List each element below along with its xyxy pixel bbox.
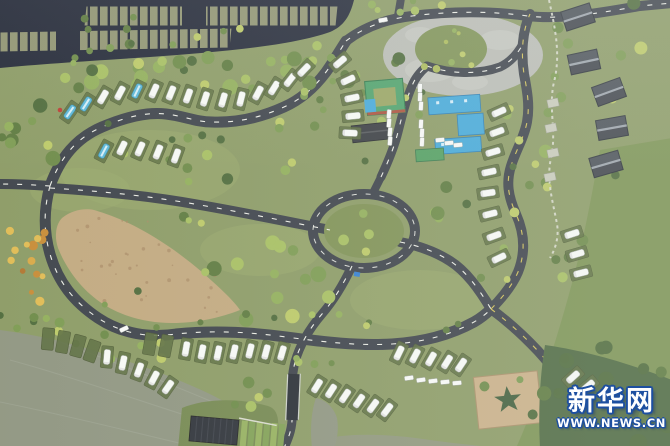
car [418,83,423,92]
aerial-photo: 新华网 WWW.NEWS.CN [0,0,670,446]
bridge [286,374,301,421]
green-roof-building [363,78,406,115]
gravel-square [473,371,542,429]
watermark-site-name: 新华网 [557,388,666,415]
lakeside-lodge [178,400,285,446]
car [387,136,392,145]
car [419,119,424,128]
car [435,137,444,142]
rv-camper [342,109,365,123]
car [386,109,391,118]
rv-camper [339,126,362,139]
car [418,92,423,101]
car [386,118,391,127]
car [419,101,424,110]
car [440,379,449,384]
car [428,378,437,383]
car [420,137,425,146]
car [420,128,425,137]
car [452,380,461,385]
watermark-site-url: WWW.NEWS.CN [557,418,666,430]
campground-scene [0,0,670,446]
watermark: 新华网 WWW.NEWS.CN [557,388,666,430]
rv-camper [100,346,114,369]
car [453,142,462,147]
car [444,140,453,145]
car [387,127,392,136]
red-flowerbed [58,108,63,113]
